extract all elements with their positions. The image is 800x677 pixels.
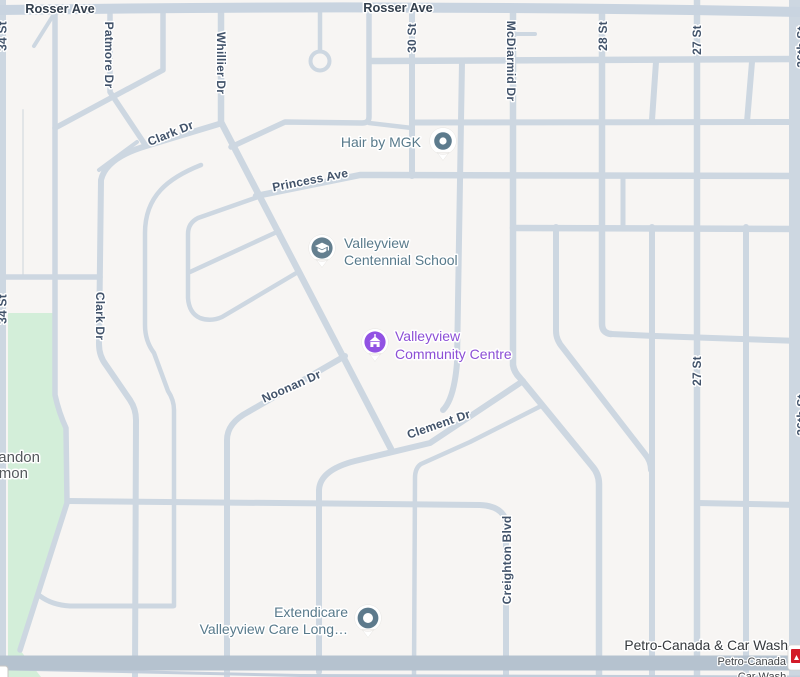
svg-text:Clark Dr: Clark Dr [93, 292, 107, 340]
svg-text:Petro-Canada & Car Wash: Petro-Canada & Car Wash [624, 638, 788, 653]
svg-text:Whillier Dr: Whillier Dr [214, 32, 228, 94]
svg-text:26th St: 26th St [795, 26, 800, 67]
svg-text:Common: Common [0, 465, 28, 482]
svg-text:Car Wash: Car Wash [738, 671, 787, 677]
svg-text:McDiarmid Dr: McDiarmid Dr [504, 21, 518, 102]
svg-text:Valleyview: Valleyview [395, 328, 461, 344]
svg-text:26th St: 26th St [795, 394, 800, 435]
svg-text:Brandon: Brandon [0, 449, 40, 466]
svg-text:Valleyview Care Long…: Valleyview Care Long… [200, 621, 348, 637]
svg-text:28 St: 28 St [596, 21, 610, 51]
svg-text:Rosser Ave: Rosser Ave [25, 1, 94, 16]
svg-text:Extendicare: Extendicare [274, 604, 348, 620]
svg-text:27 St: 27 St [690, 25, 704, 55]
svg-text:34 St: 34 St [0, 294, 10, 324]
svg-text:Valleyview: Valleyview [344, 235, 410, 251]
svg-text:27 St: 27 St [690, 356, 704, 386]
svg-text:Rosser Ave: Rosser Ave [363, 0, 432, 15]
svg-text:30 St: 30 St [405, 23, 419, 53]
svg-text:Creighton Blvd: Creighton Blvd [500, 516, 514, 605]
svg-text:Petro-Canada: Petro-Canada [718, 656, 787, 668]
svg-text:Centennial School: Centennial School [344, 252, 458, 268]
svg-text:Patmore Dr: Patmore Dr [102, 22, 116, 89]
svg-text:Community Centre: Community Centre [395, 346, 512, 362]
svg-text:Hair by MGK: Hair by MGK [341, 134, 422, 150]
svg-text:34 St: 34 St [0, 21, 10, 51]
